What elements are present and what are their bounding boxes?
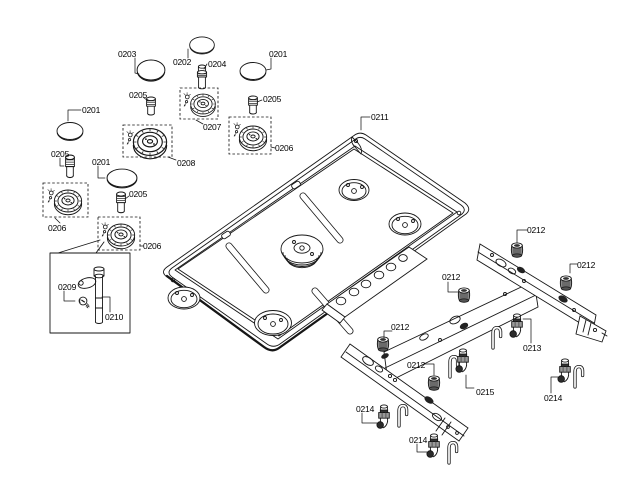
part-label-0205: 0205 (51, 149, 70, 159)
nut-0212 (377, 337, 388, 351)
burner-recess-right (389, 213, 421, 235)
pipe-hook (493, 328, 501, 348)
part-label-0214: 0214 (409, 435, 428, 445)
part-label-0207: 0207 (203, 122, 222, 132)
burner-box-0206-left (43, 183, 88, 217)
part-label-0212: 0212 (527, 225, 546, 235)
burner-cap-0203 (137, 60, 165, 81)
burner-box-0206-right (229, 117, 271, 154)
burner-cap-0202 (190, 37, 215, 54)
burner-0207 (191, 94, 216, 116)
pipe-hook (449, 443, 457, 463)
part-label-0205: 0205 (263, 94, 282, 104)
diagram-canvas: 0203 0202 0204 0201 0205 0205 0207 0206 … (0, 0, 640, 480)
pipe-hook (575, 367, 583, 387)
spark-electrode-icon (127, 130, 134, 144)
injector-0205 (147, 97, 156, 115)
burner-recess-back (339, 180, 369, 201)
part-label-0214: 0214 (356, 404, 375, 414)
spark-electrode-icon (48, 188, 55, 202)
screw-0209 (79, 297, 89, 308)
part-label-0206: 0206 (143, 241, 162, 251)
part-label-0205: 0205 (129, 90, 148, 100)
nut-0212 (511, 243, 522, 257)
part-label-0203: 0203 (118, 49, 137, 59)
burner-0208 (133, 129, 166, 159)
burner-box-0206-bottom (98, 217, 140, 250)
valve-0215 (456, 349, 468, 372)
part-label-0206: 0206 (275, 143, 294, 153)
nut-0212 (458, 288, 469, 302)
burner-recess-left (168, 287, 200, 309)
igniter-0210 (77, 267, 104, 324)
valve-0214 (427, 434, 439, 457)
injector-0205 (249, 96, 258, 114)
burner-0206 (54, 190, 81, 215)
nut-0212 (560, 276, 571, 290)
part-label-0210: 0210 (105, 312, 124, 322)
hinge-tab (291, 180, 301, 189)
part-label-0213: 0213 (523, 343, 542, 353)
hinge-tab (221, 230, 231, 239)
burner-0206 (239, 126, 266, 151)
part-label-0208: 0208 (177, 158, 196, 168)
burner-box-0208 (123, 125, 172, 159)
cooktop-panel (164, 133, 469, 350)
part-label-0206: 0206 (48, 223, 67, 233)
burner-cap-0201 (107, 169, 137, 188)
burner-recess-center (281, 235, 323, 268)
burner-cap-0201 (57, 123, 83, 141)
part-label-0209: 0209 (58, 282, 77, 292)
burner-cap-0201 (240, 63, 266, 81)
part-label-0204: 0204 (208, 59, 227, 69)
part-label-0215: 0215 (476, 387, 495, 397)
front-trim (167, 276, 335, 350)
valve-0214 (377, 405, 389, 428)
part-label-0202: 0202 (173, 57, 192, 67)
burner-recess-front (255, 311, 292, 336)
part-label-0212: 0212 (407, 360, 426, 370)
part-label-0212: 0212 (577, 260, 596, 270)
exploded-parts-diagram: 0203 0202 0204 0201 0205 0205 0207 0206 … (0, 0, 640, 480)
part-label-0212: 0212 (391, 322, 410, 332)
injector-0205 (117, 192, 126, 213)
part-label-0212: 0212 (442, 272, 461, 282)
part-label-0205: 0205 (129, 189, 148, 199)
part-label-0201: 0201 (82, 105, 101, 115)
part-label-0201: 0201 (269, 49, 288, 59)
part-label-0201: 0201 (92, 157, 111, 167)
burner-box-0207 (180, 88, 218, 119)
spark-electrode-icon (184, 92, 191, 106)
control-strip (322, 247, 427, 323)
part-label-0214: 0214 (544, 393, 563, 403)
pipe-hook (399, 406, 407, 426)
part-label-0211: 0211 (371, 112, 389, 122)
burner-0206 (107, 224, 134, 249)
nut-0212 (428, 376, 439, 390)
injector-0204 (197, 65, 206, 89)
valve-0214 (558, 359, 570, 382)
